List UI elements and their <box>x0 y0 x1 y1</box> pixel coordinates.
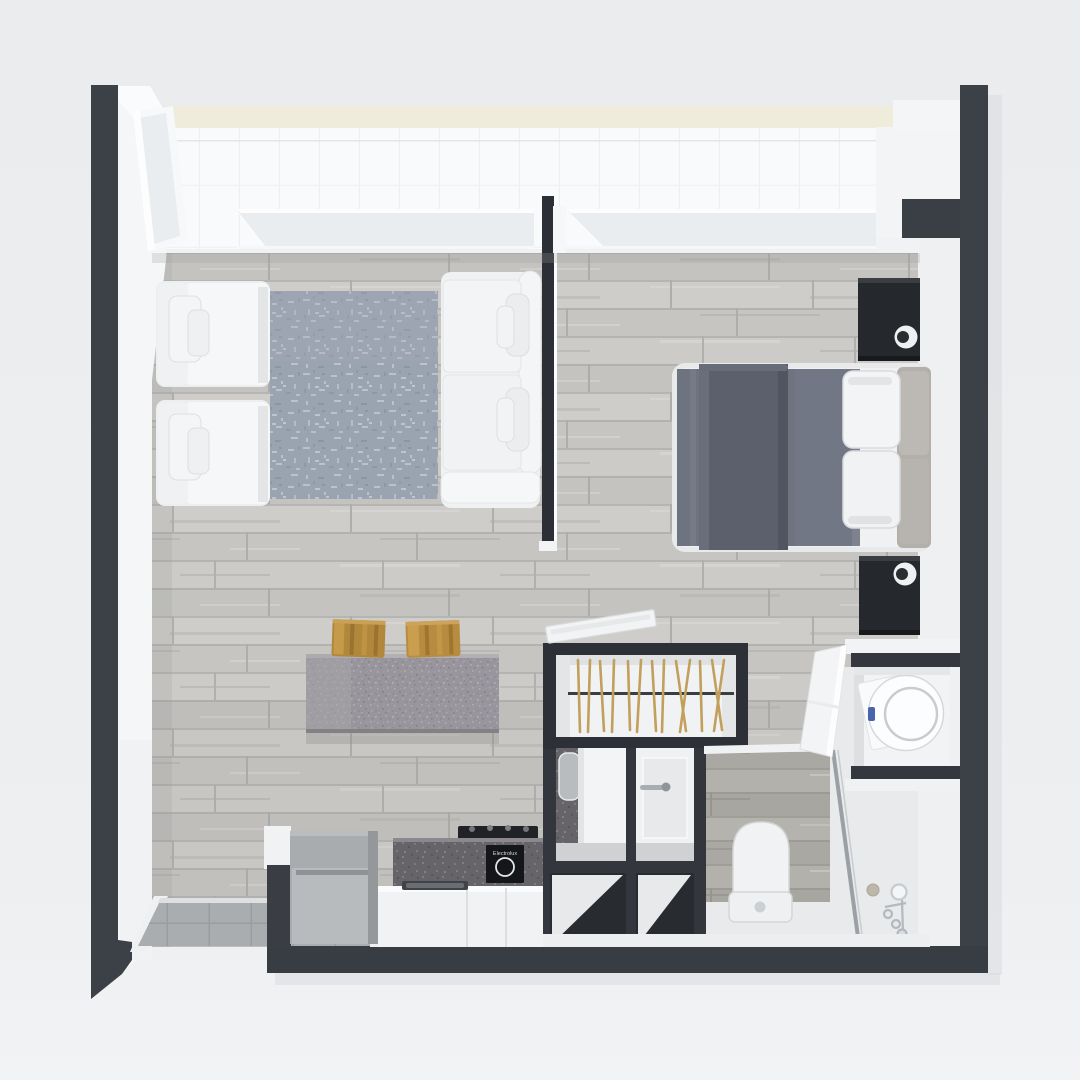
svg-text:Electrolux: Electrolux <box>493 851 517 857</box>
